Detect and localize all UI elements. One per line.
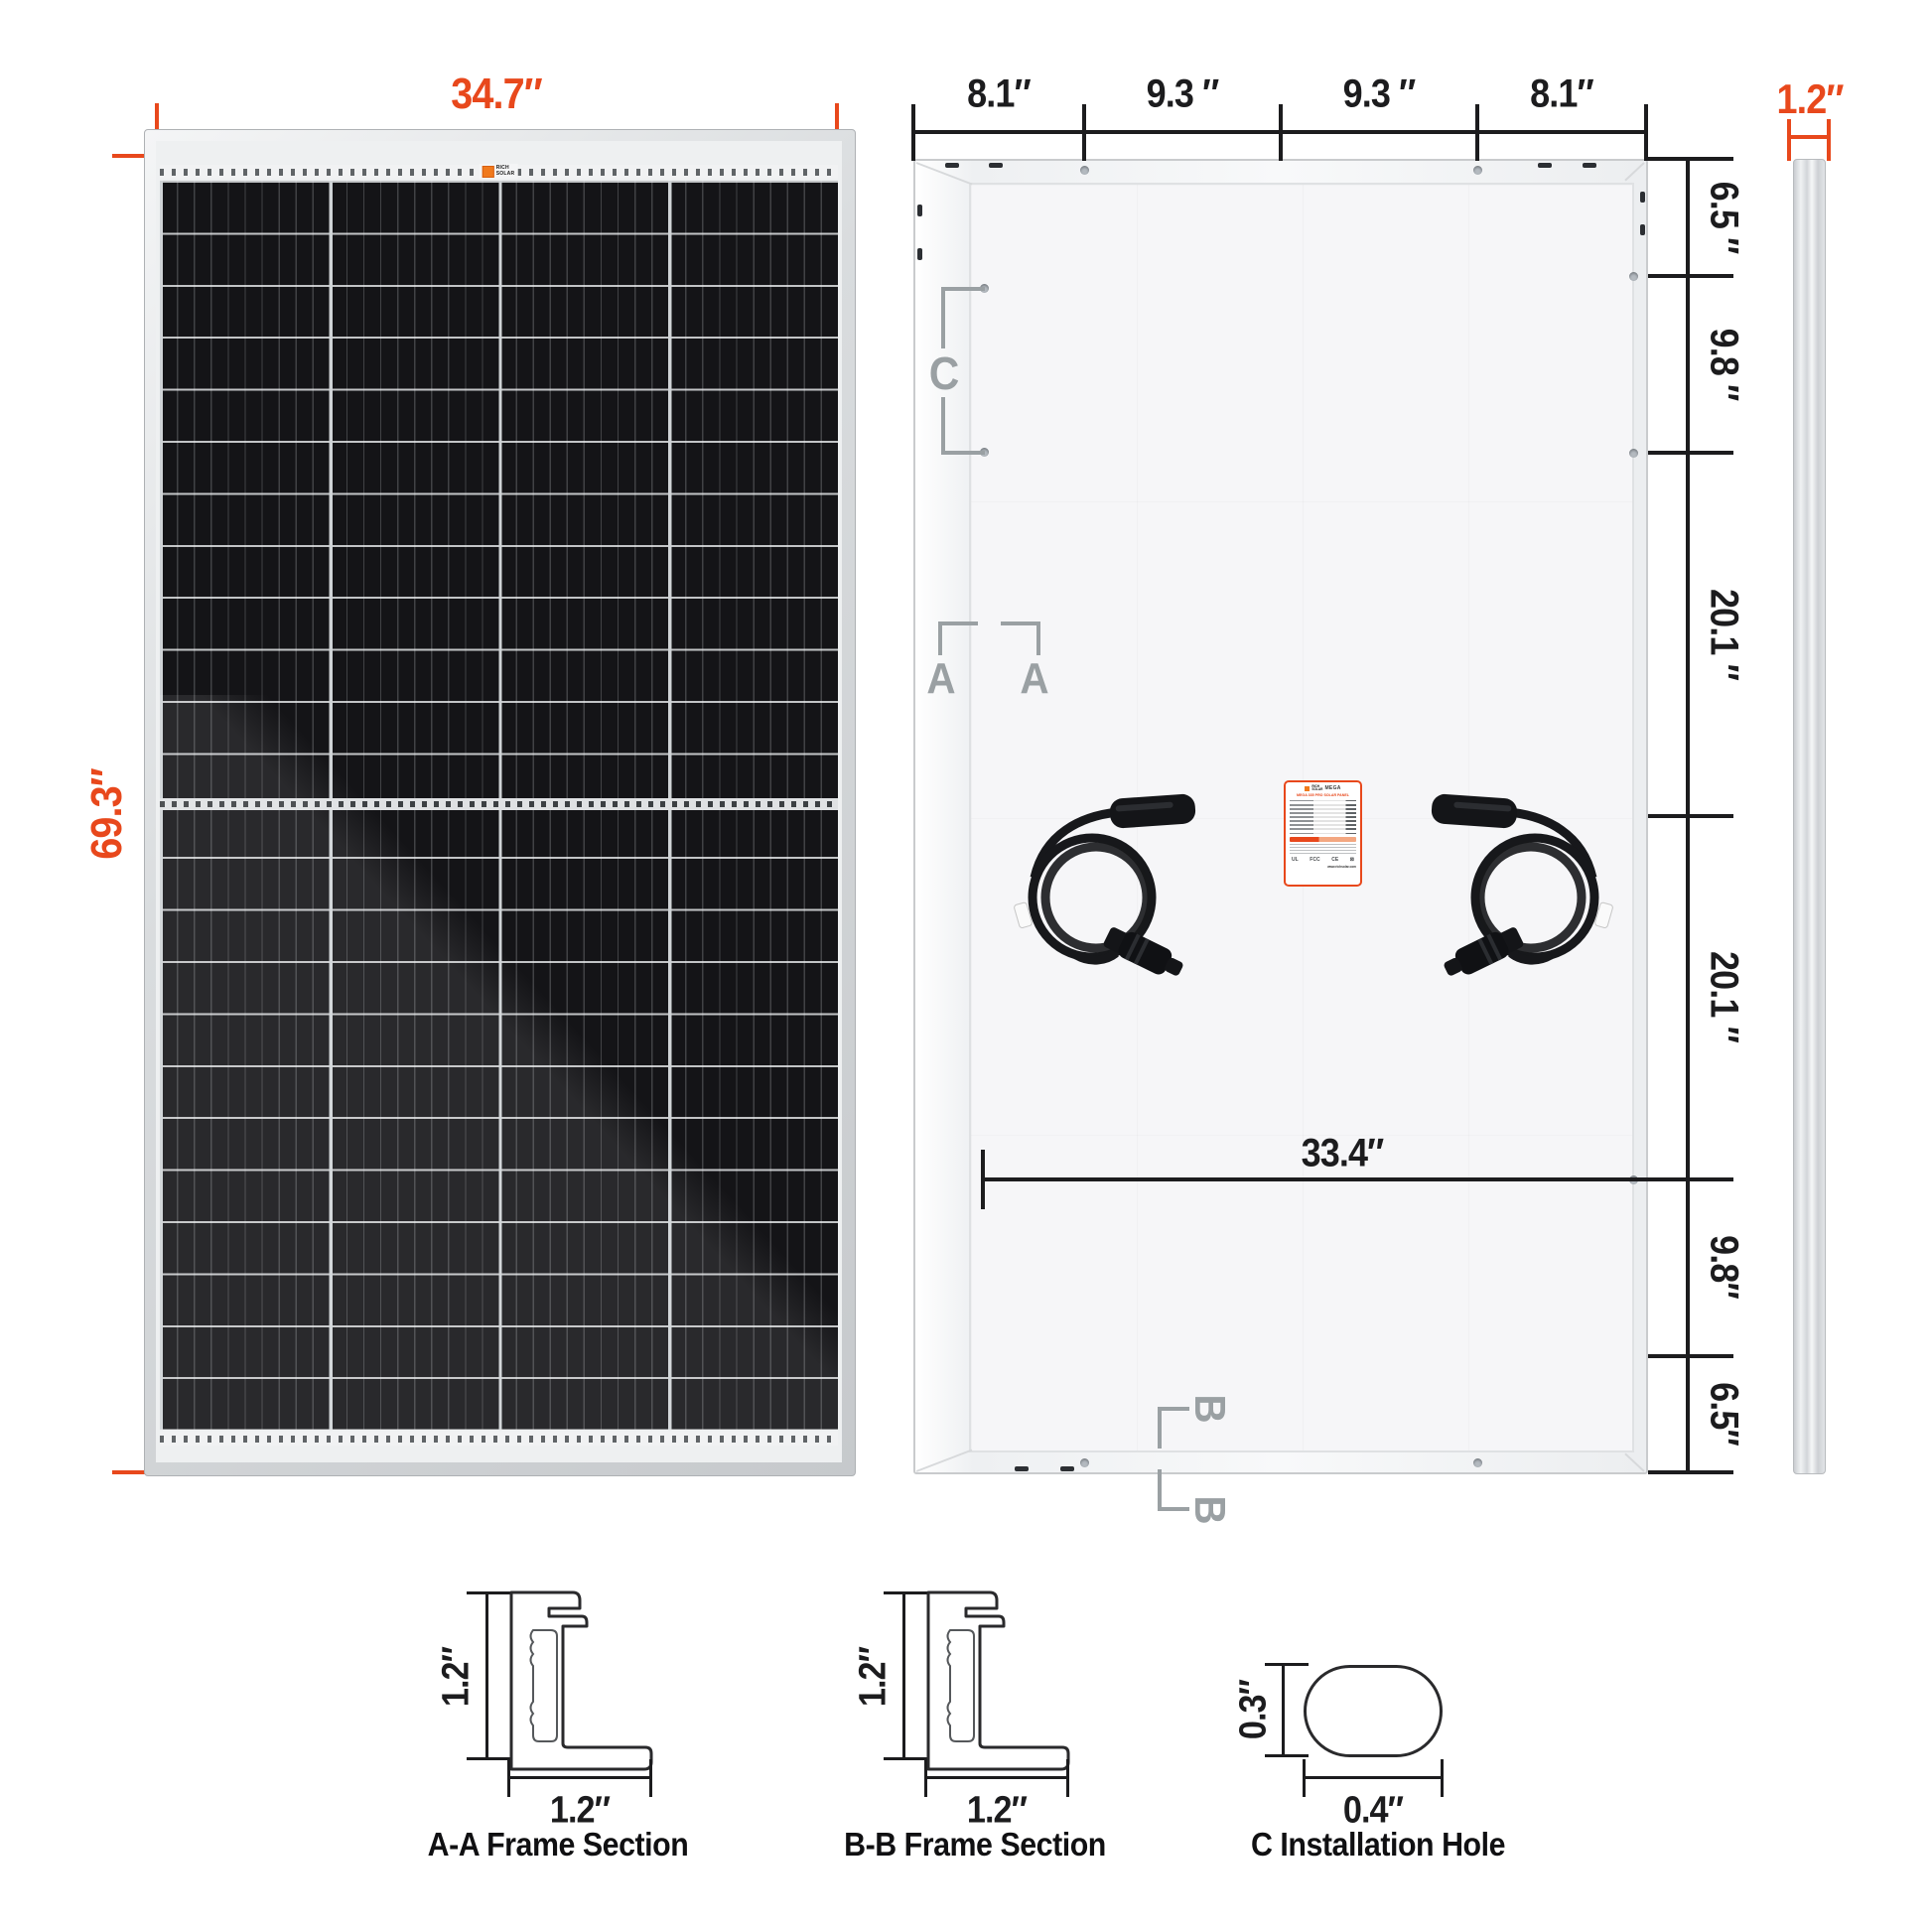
spec-text-line <box>1290 844 1356 845</box>
back-right-dim-tick-0 <box>1648 157 1733 161</box>
side-profile <box>1793 159 1826 1474</box>
back-top-dim-2: 9.3 ″ <box>1343 72 1416 117</box>
spec-row <box>1290 824 1356 826</box>
bb-height-dim-line <box>902 1593 905 1760</box>
back-top-dim-3: 8.1″ <box>1530 72 1593 117</box>
frame-slot-1 <box>945 163 959 168</box>
marker-c-stub-top <box>941 287 985 291</box>
bb-caption: B-B Frame Section <box>844 1826 1106 1863</box>
back-top-dim-tick-0 <box>911 104 915 161</box>
back-top-dim-tick-2 <box>1279 104 1283 161</box>
back-right-dim-0: 6.5 ″ <box>1702 182 1746 254</box>
back-right-dim-tick-6 <box>1648 1470 1733 1474</box>
c-width-tick-right <box>1441 1759 1444 1797</box>
c-width-dim-line <box>1304 1776 1443 1779</box>
back-right-dim-tick-2 <box>1648 451 1733 455</box>
inner-width-dim-tick <box>981 1150 985 1209</box>
section-marker-a-left: A <box>926 654 955 704</box>
marker-c-stub-bottom <box>941 451 985 455</box>
aa-width-tick-left <box>507 1759 510 1797</box>
aa-profile-drawing <box>501 1585 660 1775</box>
mounting-hole-top-2 <box>1473 166 1482 175</box>
marker-a-right-stub <box>1001 621 1040 625</box>
bb-height-dim: 1.2″ <box>853 1647 896 1707</box>
spec-text-line <box>1290 847 1356 848</box>
side-thickness-tick-right <box>1827 119 1831 161</box>
spec-row <box>1290 812 1356 814</box>
c-height-tick-bottom <box>1265 1754 1309 1757</box>
section-marker-a-right: A <box>1020 654 1048 704</box>
mounting-hole-right-1 <box>1629 272 1638 281</box>
frame-slot-3 <box>1538 163 1552 168</box>
aa-caption: A-A Frame Section <box>428 1826 689 1863</box>
frame-slot-4 <box>1583 163 1596 168</box>
back-right-dim-1: 9.8 ″ <box>1702 329 1746 401</box>
spec-text-line <box>1290 853 1356 854</box>
spec-label-title: MEGA 335 PRO SOLAR PANEL <box>1290 793 1356 797</box>
cable-right <box>1428 786 1616 985</box>
bb-width-dim-line <box>925 1776 1068 1779</box>
aa-width-dim-line <box>508 1776 651 1779</box>
mounting-hole-top-1 <box>1080 166 1089 175</box>
ul-cert-icon: UL <box>1292 857 1299 863</box>
aa-height-dim-line <box>485 1593 488 1760</box>
side-thickness-dim-line <box>1789 135 1831 139</box>
c-width-tick-left <box>1303 1759 1306 1797</box>
brand-logo-icon <box>483 166 494 178</box>
spec-label-series: MEGA <box>1324 785 1340 791</box>
marker-b-bottom-line <box>1158 1469 1162 1511</box>
c-height-dim: 0.3″ <box>1233 1680 1276 1739</box>
marker-c-line-top <box>941 287 945 348</box>
section-marker-b-top: B <box>1184 1394 1234 1423</box>
bb-profile-drawing <box>918 1585 1077 1775</box>
spec-row <box>1290 800 1356 802</box>
back-right-dim-3: 20.1 ″ <box>1702 951 1746 1042</box>
spec-label-logo-icon <box>1305 786 1310 791</box>
spec-cert-icons: UL FCC CE ⊠ <box>1290 857 1356 863</box>
fcc-cert-icon: FCC <box>1310 857 1319 863</box>
mounting-hole-bottom-1 <box>1080 1458 1089 1467</box>
frame-slot-10 <box>1060 1466 1074 1471</box>
mounting-hole-right-2 <box>1629 449 1638 458</box>
spec-label: RICH SOLAR MEGA MEGA 335 PRO SOLAR PANEL… <box>1284 780 1362 887</box>
back-right-dim-tick-5 <box>1648 1354 1733 1358</box>
spec-row <box>1290 833 1356 835</box>
frame-slot-8 <box>1640 224 1645 235</box>
cable-left <box>1011 786 1199 985</box>
frame-slot-6 <box>917 248 922 260</box>
frame-slot-5 <box>917 205 922 216</box>
spec-row <box>1290 804 1356 806</box>
back-right-dim-2: 20.1 ″ <box>1702 589 1746 680</box>
spec-warning-band <box>1290 837 1356 842</box>
spec-label-website: www.richsolar.com <box>1290 865 1356 869</box>
bb-width-tick-left <box>924 1759 927 1797</box>
c-height-dim-line <box>1282 1665 1285 1757</box>
front-panel-glass-reflection <box>160 695 838 1430</box>
spec-label-header: RICH SOLAR MEGA <box>1290 785 1356 792</box>
marker-c-line-bottom <box>941 397 945 455</box>
back-top-dim-tick-4 <box>1644 104 1648 161</box>
back-top-dim-0: 8.1″ <box>967 72 1031 117</box>
back-right-dim-4: 9.8″ <box>1702 1235 1746 1299</box>
c-caption: C Installation Hole <box>1251 1826 1505 1863</box>
section-marker-c: C <box>929 346 960 400</box>
aa-height-dim: 1.2″ <box>436 1647 479 1707</box>
marker-a-left-stub <box>938 621 978 625</box>
back-right-dim-5: 6.5″ <box>1702 1382 1746 1446</box>
back-right-dim-tick-3 <box>1648 814 1733 818</box>
frame-slot-7 <box>1640 192 1645 203</box>
inner-width-dim-line <box>983 1177 1687 1181</box>
marker-b-top-line <box>1158 1407 1162 1449</box>
brand-logo-text: RICH SOLAR <box>496 166 515 177</box>
marker-a-right-line <box>1036 621 1040 655</box>
back-right-dim-tick-1 <box>1648 274 1733 278</box>
front-panel-busbar-bottom <box>160 1432 838 1446</box>
cable-right-drawing <box>1428 786 1616 985</box>
marker-a-left-line <box>938 621 942 655</box>
side-thickness-dim: 1.2″ <box>1776 75 1843 123</box>
spec-text-line <box>1290 850 1356 851</box>
side-thickness-tick-left <box>1787 119 1791 161</box>
weee-bin-icon: ⊠ <box>1350 857 1354 863</box>
c-height-tick-top <box>1265 1663 1309 1666</box>
back-top-dim-1: 9.3 ″ <box>1147 72 1219 117</box>
front-height-dim: 69.3″ <box>82 768 132 860</box>
bb-width-tick-right <box>1066 1759 1069 1797</box>
front-width-dim: 34.7″ <box>451 69 542 119</box>
frame-slot-9 <box>1015 1466 1029 1471</box>
back-top-dim-tick-1 <box>1082 104 1086 161</box>
mounting-hole-bottom-2 <box>1473 1458 1482 1467</box>
spec-row <box>1290 820 1356 822</box>
section-marker-b-bottom: B <box>1184 1495 1234 1524</box>
spec-label-brand: RICH SOLAR <box>1311 785 1322 792</box>
back-top-dim-tick-3 <box>1475 104 1479 161</box>
aa-width-tick-right <box>649 1759 652 1797</box>
junction-lead-connector <box>1109 793 1196 829</box>
installation-hole-shape <box>1304 1665 1443 1757</box>
spec-row <box>1290 816 1356 818</box>
spec-row <box>1290 828 1356 830</box>
cable-left-drawing <box>1011 786 1199 985</box>
brand-logo: RICH SOLAR <box>480 164 518 179</box>
spec-row <box>1290 808 1356 810</box>
ce-cert-icon: CE <box>1331 857 1338 863</box>
solar-panel-dimension-diagram: 34.7″ 69.3″ RICH SOLAR <box>0 0 1932 1932</box>
inner-width-dim: 33.4″ <box>1302 1132 1384 1176</box>
frame-slot-2 <box>989 163 1003 168</box>
